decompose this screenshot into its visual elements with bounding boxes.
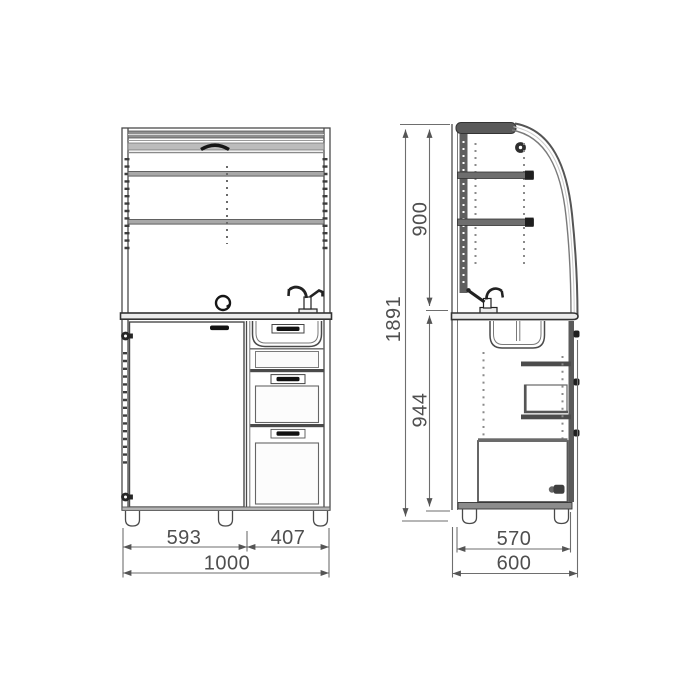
foot-front-right xyxy=(314,511,328,526)
dim-label-upper-height: 900 xyxy=(410,202,432,237)
drawer-fronts-section xyxy=(569,321,575,502)
knob-icon xyxy=(216,296,230,310)
dim-label-door-width: 593 xyxy=(167,527,202,549)
worktop-side xyxy=(452,313,579,320)
drawer-2-handle xyxy=(277,377,300,381)
dim-label-drawers-width: 407 xyxy=(271,527,306,549)
sink-section xyxy=(490,321,545,348)
dim-label-lower-height: 944 xyxy=(410,393,432,428)
foot-front-middle xyxy=(219,511,233,526)
side-top-panel xyxy=(456,123,516,134)
side-handle-3 xyxy=(574,430,580,437)
faucet-icon-side xyxy=(466,288,503,314)
dim-label-carcass-depth: 570 xyxy=(497,528,532,550)
foot-front-left xyxy=(126,511,140,526)
dim-label-overall-width: 1000 xyxy=(204,553,251,575)
dim-label-overall-depth: 600 xyxy=(497,553,532,575)
foot-side-front xyxy=(555,510,569,524)
sink-handle xyxy=(277,327,300,331)
side-shelf-1 xyxy=(458,171,534,180)
front-view xyxy=(121,128,332,526)
dim-label-overall-height: 1891 xyxy=(383,296,405,343)
side-view xyxy=(452,123,580,524)
side-handle-2 xyxy=(574,379,580,386)
side-handle-1 xyxy=(574,331,580,338)
cabinet-drawing: 593 407 1000 570 600 900 1891 944 xyxy=(0,0,700,700)
drawer-3-handle xyxy=(277,431,300,435)
countertop-front xyxy=(121,313,332,319)
side-shelf-2 xyxy=(458,218,534,227)
bottom-drawer-box xyxy=(478,438,568,502)
technical-drawing-page: 593 407 1000 570 600 900 1891 944 xyxy=(0,0,700,700)
door-handle xyxy=(210,326,229,331)
shelf-pin-strip xyxy=(460,134,468,293)
foot-side-back xyxy=(463,510,477,524)
